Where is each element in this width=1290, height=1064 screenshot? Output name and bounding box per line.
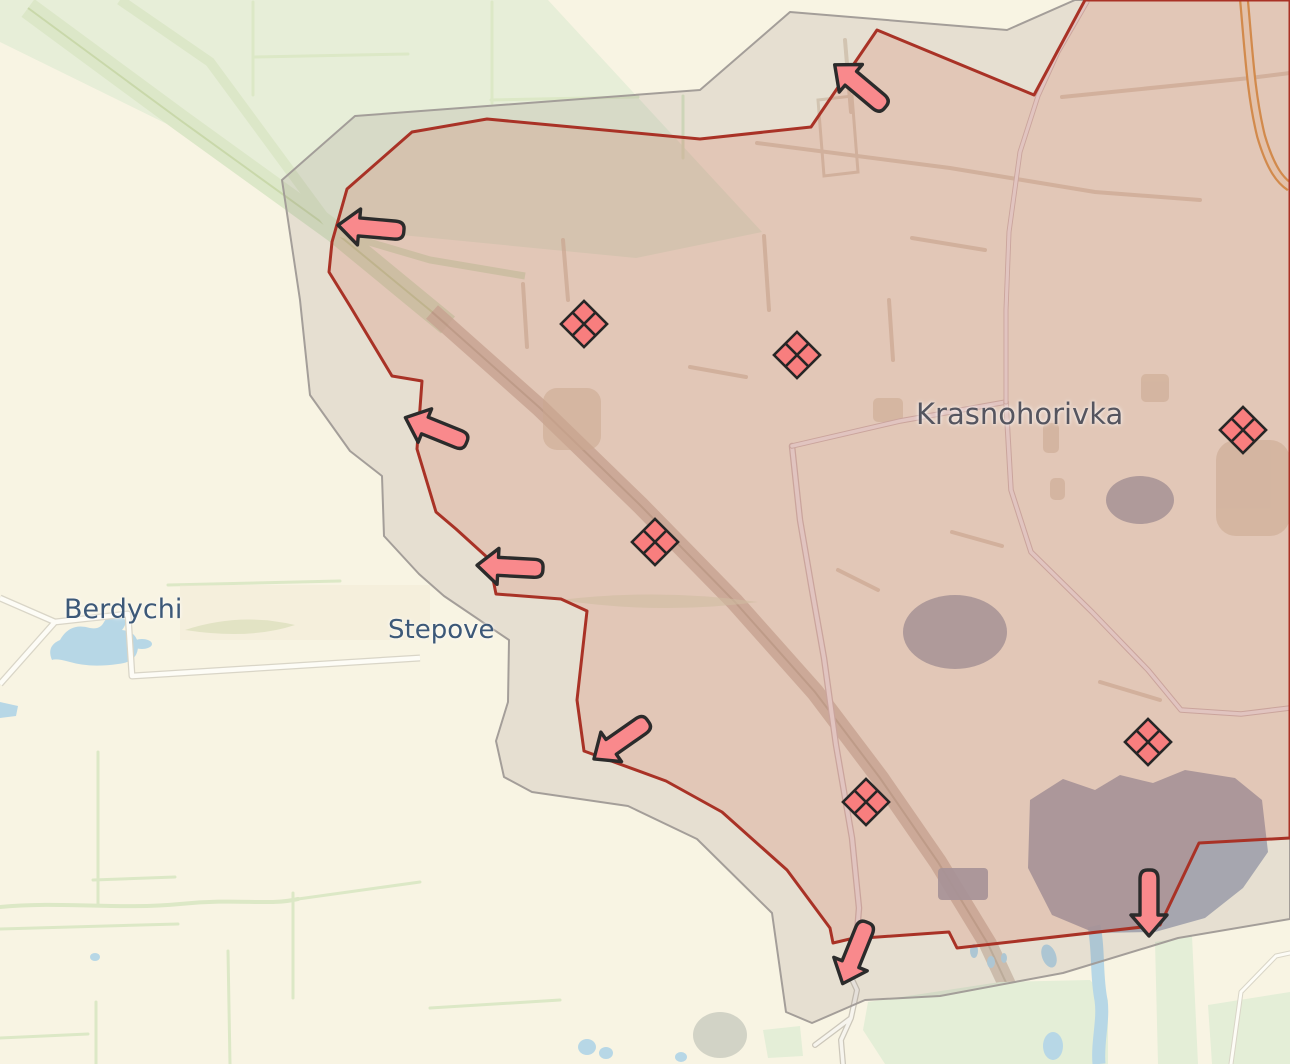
map-canvas[interactable] — [0, 0, 1290, 1064]
map-viewport[interactable]: Berdychi Stepove Krasnohorivka — [0, 0, 1290, 1064]
grey-green-patch — [693, 1012, 747, 1058]
